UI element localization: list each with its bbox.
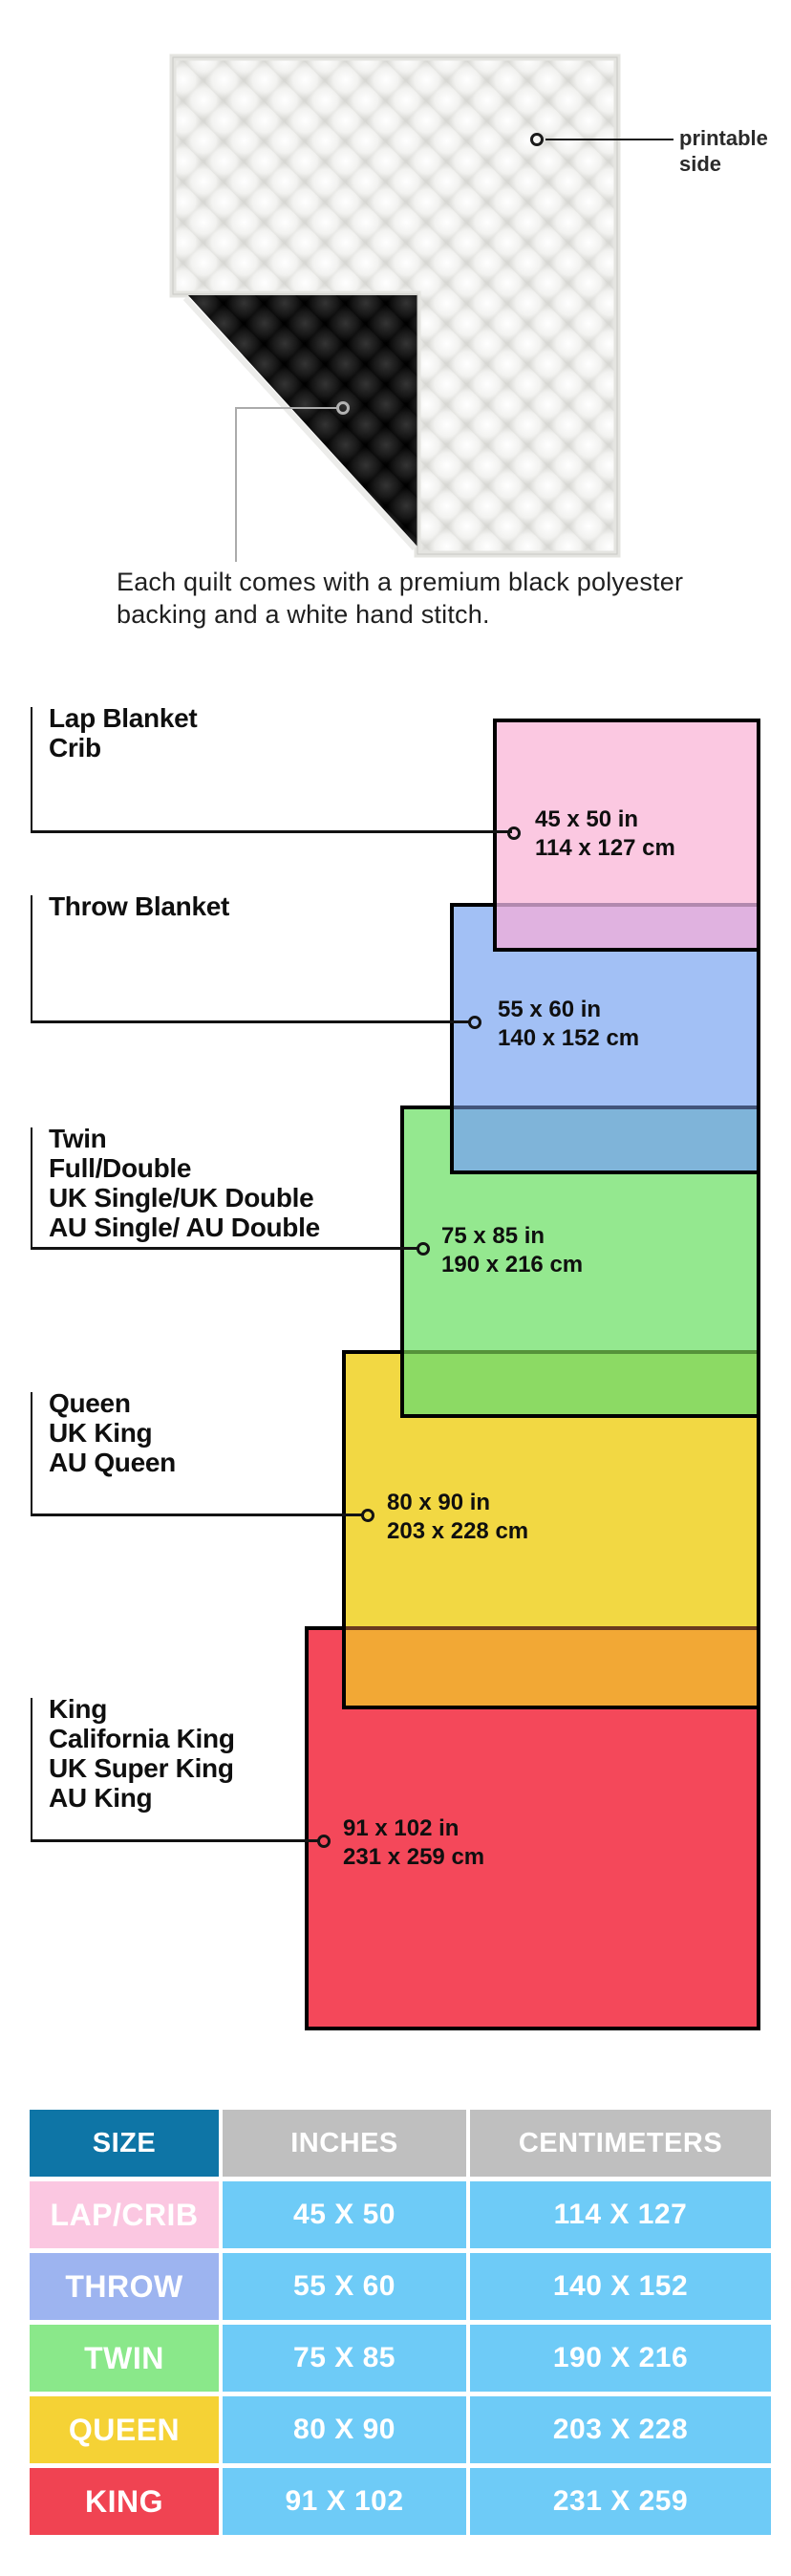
- dims-queen: 80 x 90 in 203 x 228 cm: [387, 1489, 528, 1546]
- pointer-bracket-twin: [31, 1127, 32, 1249]
- dims-king-cm: 231 x 259 cm: [343, 1843, 484, 1872]
- header-size: SIZE: [30, 2110, 219, 2177]
- row-cm: 114 X 127: [470, 2181, 771, 2248]
- label-queen-line1: Queen: [49, 1388, 176, 1418]
- label-queen-line2: UK King: [49, 1418, 176, 1448]
- printable-side-marker-icon: [530, 133, 544, 146]
- printable-side-pointer-line: [545, 139, 673, 140]
- table-row-king: KING 91 X 102 231 X 259: [30, 2468, 771, 2535]
- row-label: LAP/CRIB: [30, 2181, 219, 2248]
- label-queen-line3: AU Queen: [49, 1448, 176, 1477]
- header-centimeters: CENTIMETERS: [470, 2110, 771, 2177]
- backing-marker-icon: [336, 401, 350, 415]
- pointer-bracket-throw: [31, 895, 32, 1022]
- row-inches: 80 X 90: [223, 2396, 466, 2463]
- row-cm: 140 X 152: [470, 2253, 771, 2320]
- label-king-line2: California King: [49, 1724, 235, 1753]
- table-row-queen: QUEEN 80 X 90 203 X 228: [30, 2396, 771, 2463]
- row-label: TWIN: [30, 2325, 219, 2392]
- pointer-line-lap: [31, 830, 512, 833]
- dims-king: 91 x 102 in 231 x 259 cm: [343, 1814, 484, 1872]
- quilt-caption: Each quilt comes with a premium black po…: [117, 566, 683, 631]
- pointer-dot-twin: [417, 1242, 430, 1256]
- overlap-band-twin-queen: [404, 1350, 757, 1414]
- quilt-backing: [188, 295, 417, 547]
- backing-pointer-line-h: [236, 407, 338, 409]
- dims-lap-cm: 114 x 127 cm: [535, 834, 675, 863]
- dims-twin-in: 75 x 85 in: [441, 1222, 583, 1251]
- quilt-caption-line2: backing and a white hand stitch.: [117, 598, 683, 631]
- size-table: SIZE INCHES CENTIMETERS LAP/CRIB 45 X 50…: [30, 2110, 771, 2535]
- overlap-band-queen-king: [346, 1626, 757, 1706]
- overlap-band-throw-twin: [454, 1106, 757, 1170]
- dims-lap-in: 45 x 50 in: [535, 805, 675, 834]
- row-cm: 190 X 216: [470, 2325, 771, 2392]
- pointer-dot-queen: [361, 1509, 374, 1522]
- label-twin-line3: UK Single/UK Double: [49, 1183, 320, 1213]
- pointer-dot-throw: [468, 1016, 481, 1029]
- label-twin-line4: AU Single/ AU Double: [49, 1213, 320, 1242]
- pointer-bracket-king: [31, 1698, 32, 1841]
- row-inches: 45 X 50: [223, 2181, 466, 2248]
- row-label: KING: [30, 2468, 219, 2535]
- label-king-line3: UK Super King: [49, 1753, 235, 1783]
- table-row-throw: THROW 55 X 60 140 X 152: [30, 2253, 771, 2320]
- label-twin-line1: Twin: [49, 1124, 320, 1153]
- row-inches: 91 X 102: [223, 2468, 466, 2535]
- pointer-line-queen: [31, 1513, 362, 1516]
- label-king: King California King UK Super King AU Ki…: [49, 1694, 235, 1813]
- label-twin: Twin Full/Double UK Single/UK Double AU …: [49, 1124, 320, 1242]
- label-throw-line1: Throw Blanket: [49, 891, 229, 921]
- printable-side-label: printable side: [679, 125, 791, 177]
- pointer-line-throw: [31, 1020, 469, 1023]
- label-lap: Lap Blanket Crib: [49, 703, 197, 762]
- quilt-size-guide-infographic: printable side Each quilt comes with a p…: [0, 0, 791, 2576]
- label-queen: Queen UK King AU Queen: [49, 1388, 176, 1477]
- dims-throw-in: 55 x 60 in: [498, 996, 639, 1024]
- table-row-twin: TWIN 75 X 85 190 X 216: [30, 2325, 771, 2392]
- pointer-line-twin: [31, 1247, 417, 1250]
- dims-throw: 55 x 60 in 140 x 152 cm: [498, 996, 639, 1053]
- row-cm: 231 X 259: [470, 2468, 771, 2535]
- quilt-caption-line1: Each quilt comes with a premium black po…: [117, 566, 683, 598]
- row-label: QUEEN: [30, 2396, 219, 2463]
- dims-throw-cm: 140 x 152 cm: [498, 1024, 639, 1053]
- row-label: THROW: [30, 2253, 219, 2320]
- pointer-line-king: [31, 1839, 318, 1842]
- dims-twin-cm: 190 x 216 cm: [441, 1251, 583, 1279]
- header-inches: INCHES: [223, 2110, 466, 2177]
- pointer-dot-lap: [507, 826, 521, 840]
- label-king-line1: King: [49, 1694, 235, 1724]
- row-inches: 75 X 85: [223, 2325, 466, 2392]
- label-twin-line2: Full/Double: [49, 1153, 320, 1183]
- dims-queen-in: 80 x 90 in: [387, 1489, 528, 1517]
- overlap-band-lap-throw: [497, 903, 757, 948]
- row-cm: 203 X 228: [470, 2396, 771, 2463]
- dims-king-in: 91 x 102 in: [343, 1814, 484, 1843]
- table-row-lap: LAP/CRIB 45 X 50 114 X 127: [30, 2181, 771, 2248]
- label-king-line4: AU King: [49, 1783, 235, 1813]
- dims-queen-cm: 203 x 228 cm: [387, 1517, 528, 1546]
- row-inches: 55 X 60: [223, 2253, 466, 2320]
- backing-pointer-line-v: [235, 407, 237, 562]
- label-lap-line2: Crib: [49, 733, 197, 762]
- pointer-bracket-queen: [31, 1392, 32, 1515]
- pointer-dot-king: [317, 1835, 331, 1848]
- dims-lap: 45 x 50 in 114 x 127 cm: [535, 805, 675, 863]
- table-header-row: SIZE INCHES CENTIMETERS: [30, 2110, 771, 2177]
- label-throw: Throw Blanket: [49, 891, 229, 921]
- dims-twin: 75 x 85 in 190 x 216 cm: [441, 1222, 583, 1279]
- label-lap-line1: Lap Blanket: [49, 703, 197, 733]
- pointer-bracket-lap: [31, 707, 32, 832]
